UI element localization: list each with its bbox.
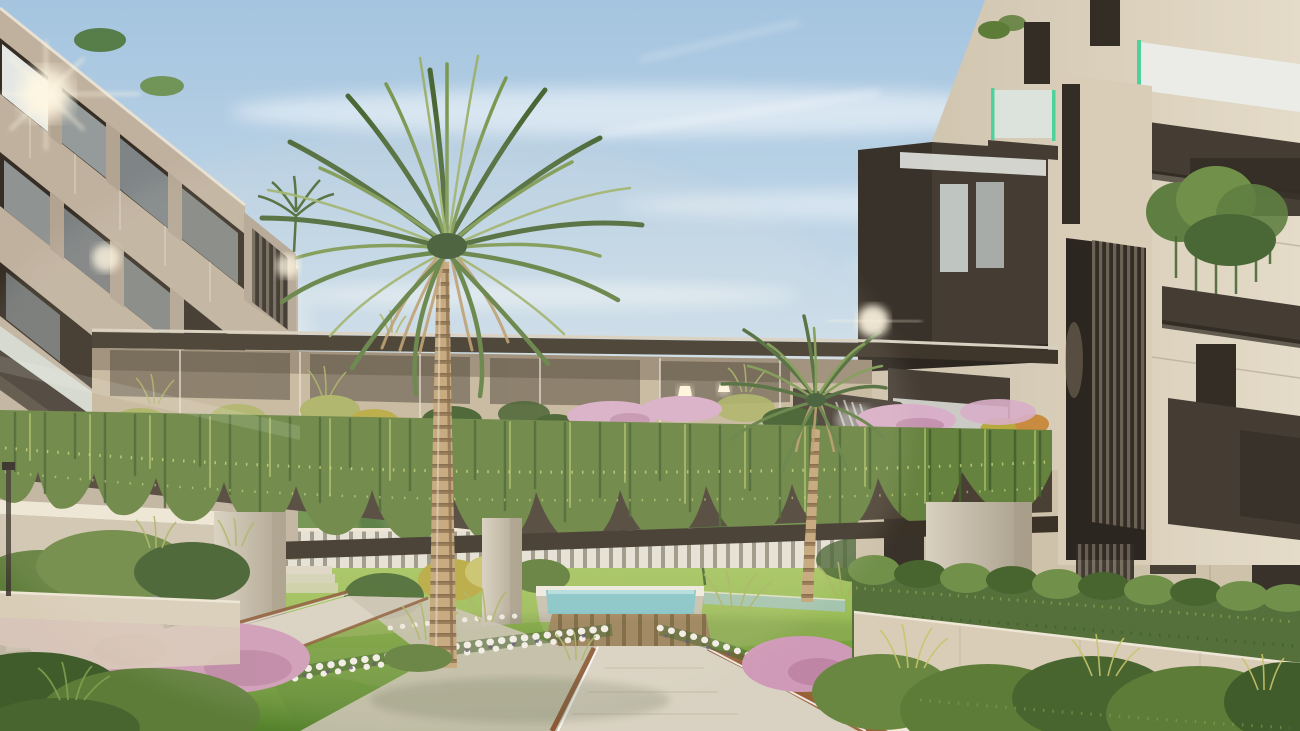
louver-pier: Vertical louver screen bbox=[1058, 74, 1152, 565]
rendering-canvas: Sky with wispy clouds Cloud streaks Gard… bbox=[0, 0, 1300, 731]
architectural-rendering: Sky with wispy clouds Cloud streaks Gard… bbox=[0, 0, 1300, 731]
